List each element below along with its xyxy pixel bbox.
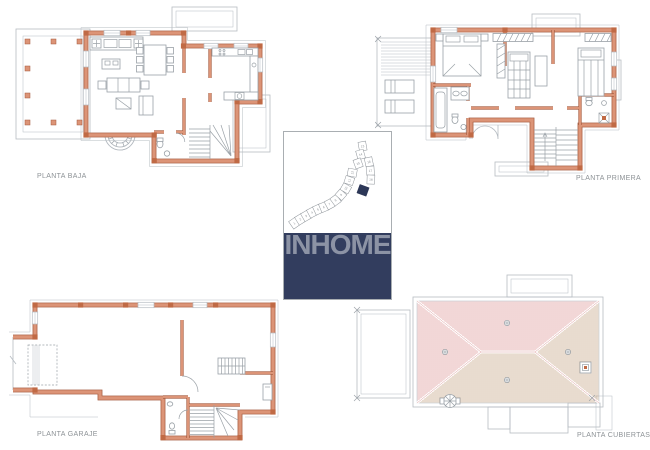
driveway bbox=[10, 337, 57, 390]
site-plot: 17 bbox=[366, 166, 374, 176]
label-planta-cubiertas: PLANTA CUBIERTAS bbox=[577, 432, 650, 439]
site-plot: 15 bbox=[353, 158, 363, 169]
svg-text:18: 18 bbox=[369, 178, 373, 182]
site-plan-inset: 123456789101112131415161718 bbox=[284, 132, 391, 233]
double-bed bbox=[443, 34, 481, 76]
site-plot: 16 bbox=[364, 157, 373, 167]
label-planta-garaje: PLANTA GARAJE bbox=[37, 431, 98, 438]
site-plot: 12 bbox=[347, 168, 357, 177]
highlighted-plot bbox=[357, 184, 369, 196]
armchair bbox=[139, 96, 153, 115]
label-planta-primera: PLANTA PRIMERA bbox=[576, 175, 641, 182]
plan-planta-baja bbox=[8, 3, 273, 175]
storage-closet bbox=[218, 358, 272, 400]
bedroom-3 bbox=[578, 48, 604, 96]
bathroom-1 bbox=[434, 87, 469, 132]
dining-table bbox=[144, 45, 166, 75]
porch-below bbox=[510, 407, 568, 433]
single-bed bbox=[508, 52, 530, 98]
svg-text:17: 17 bbox=[369, 169, 373, 173]
sofa bbox=[107, 78, 140, 92]
label-planta-baja: PLANTA BAJA bbox=[37, 173, 87, 180]
bathroom bbox=[157, 133, 185, 156]
site-plot: 18 bbox=[367, 175, 375, 184]
wc bbox=[167, 402, 188, 434]
inhome-logo-text: INHOME bbox=[284, 230, 391, 260]
plan-planta-garaje bbox=[8, 298, 283, 446]
bedroom-2 bbox=[508, 52, 547, 98]
plan-planta-primera bbox=[375, 8, 630, 183]
roof bbox=[413, 297, 603, 408]
living-room-furniture bbox=[90, 37, 174, 115]
bathroom-2 bbox=[586, 98, 609, 124]
porch-terrace bbox=[16, 29, 90, 139]
stairs bbox=[182, 376, 240, 438]
plan-planta-cubiertas bbox=[352, 270, 647, 442]
car-space bbox=[28, 345, 57, 385]
floorplan-sheet: PLANTA BAJA bbox=[0, 0, 650, 450]
roof-terrace bbox=[375, 36, 433, 128]
master-bedroom bbox=[436, 34, 488, 76]
kitchen bbox=[212, 48, 258, 100]
stairs bbox=[189, 125, 231, 159]
stairs bbox=[534, 127, 578, 166]
sun-lounger bbox=[385, 100, 414, 113]
sun-lounger bbox=[385, 80, 414, 93]
windows bbox=[32, 302, 275, 347]
terrace-outline bbox=[354, 307, 410, 401]
